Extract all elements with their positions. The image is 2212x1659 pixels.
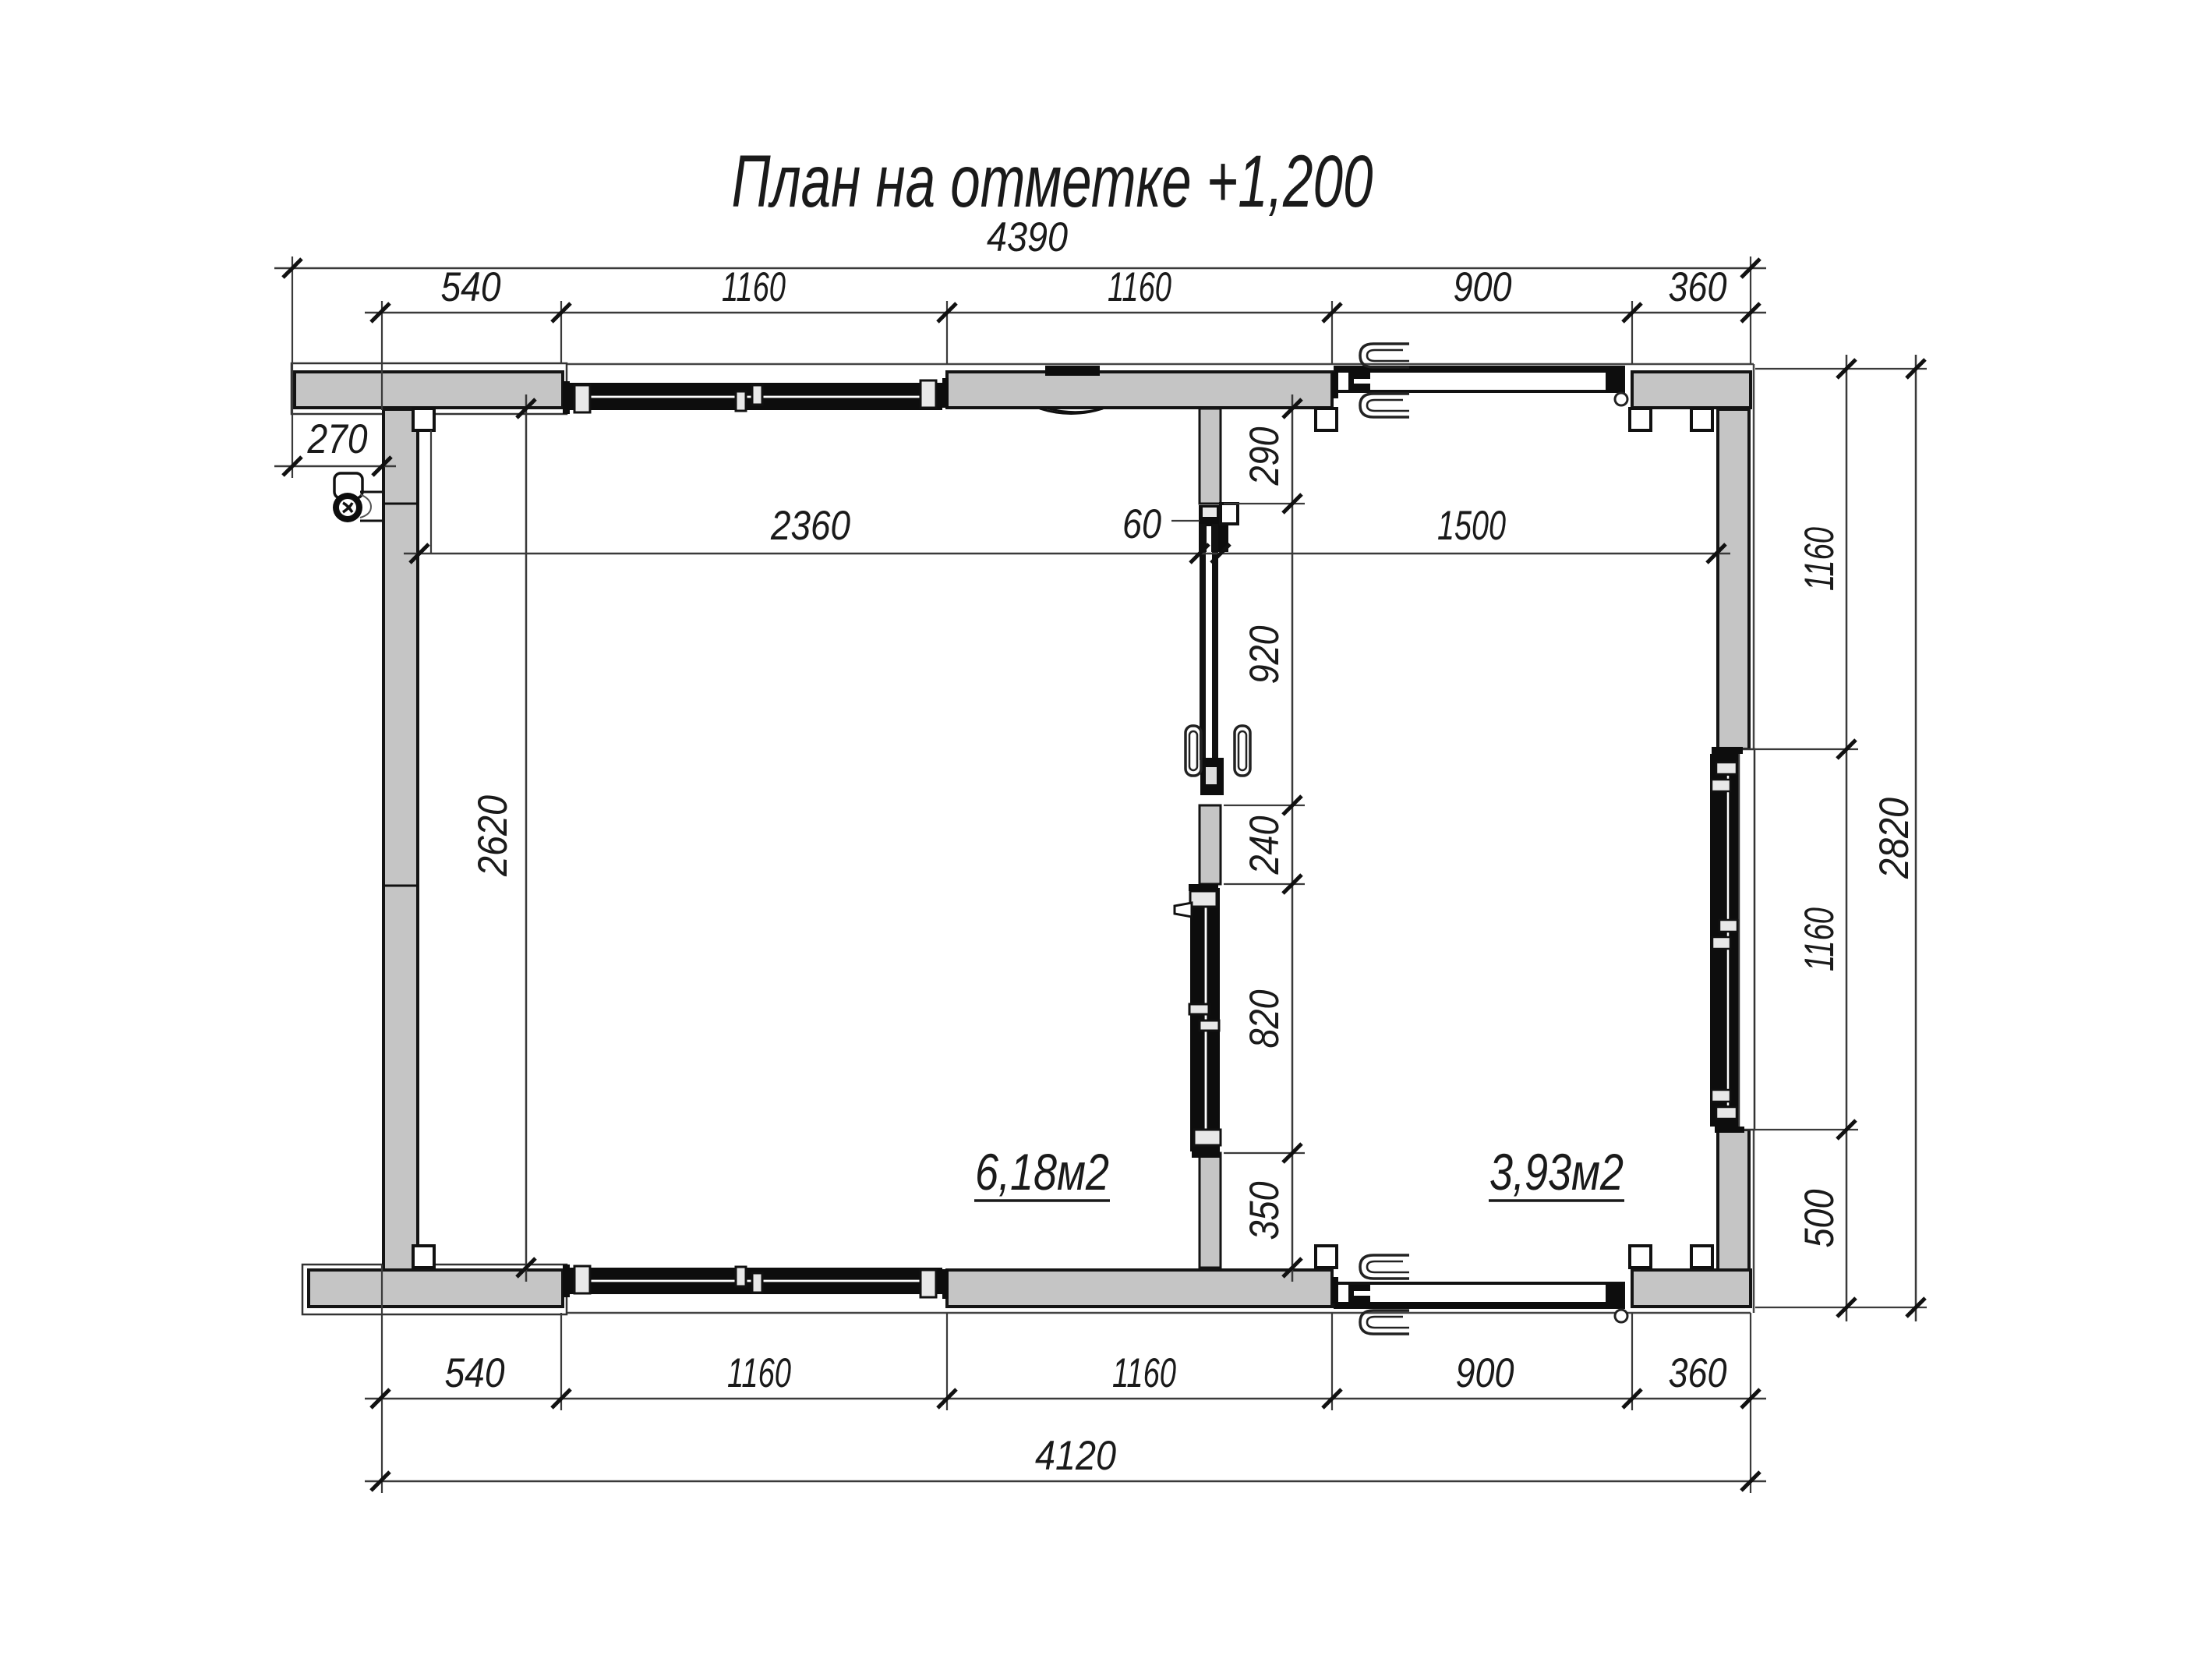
svg-text:1160: 1160 — [1112, 1350, 1176, 1396]
svg-text:360: 360 — [1669, 264, 1727, 310]
svg-text:920: 920 — [1242, 625, 1288, 684]
svg-text:1160: 1160 — [1797, 527, 1843, 591]
svg-text:900: 900 — [1454, 264, 1512, 310]
svg-text:900: 900 — [1456, 1350, 1514, 1396]
svg-text:4120: 4120 — [1035, 1433, 1116, 1479]
svg-text:240: 240 — [1242, 815, 1288, 875]
svg-text:6,18м2: 6,18м2 — [975, 1143, 1109, 1201]
svg-text:1160: 1160 — [1108, 264, 1171, 310]
svg-text:270: 270 — [307, 416, 368, 462]
svg-text:1160: 1160 — [722, 264, 786, 310]
svg-text:2820: 2820 — [1871, 798, 1917, 879]
svg-text:2620: 2620 — [470, 795, 516, 877]
svg-text:820: 820 — [1242, 989, 1288, 1048]
svg-text:План на отметке +1,200: План на отметке +1,200 — [732, 140, 1373, 223]
svg-text:290: 290 — [1242, 426, 1288, 486]
svg-text:350: 350 — [1242, 1181, 1288, 1240]
svg-text:500: 500 — [1797, 1189, 1843, 1247]
svg-text:4390: 4390 — [987, 214, 1068, 260]
svg-text:1160: 1160 — [727, 1350, 791, 1396]
svg-text:1500: 1500 — [1437, 503, 1506, 549]
svg-text:2360: 2360 — [770, 503, 850, 549]
svg-text:3,93м2: 3,93м2 — [1489, 1143, 1624, 1201]
svg-text:540: 540 — [445, 1350, 505, 1396]
svg-text:540: 540 — [441, 264, 501, 310]
svg-text:360: 360 — [1669, 1350, 1727, 1396]
svg-text:60: 60 — [1122, 501, 1161, 547]
svg-text:1160: 1160 — [1797, 907, 1843, 971]
